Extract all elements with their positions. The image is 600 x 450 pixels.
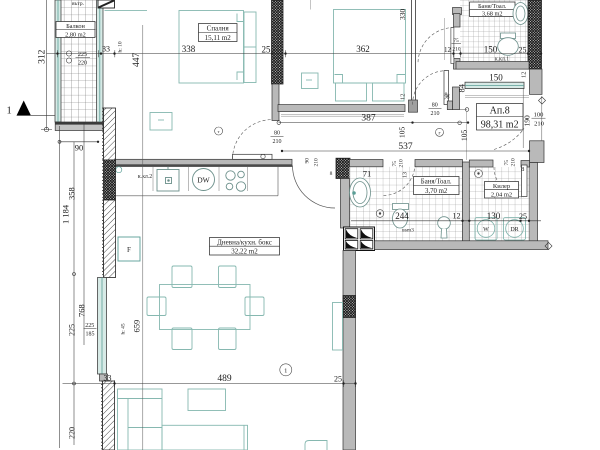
svg-text:12: 12: [444, 46, 452, 54]
svg-text:489: 489: [217, 374, 232, 384]
svg-text:1: 1: [7, 106, 12, 117]
svg-text:659: 659: [132, 320, 142, 333]
svg-text:h: 45: h: 45: [121, 323, 127, 334]
svg-text:210: 210: [534, 120, 544, 127]
svg-text:537: 537: [398, 142, 413, 152]
svg-text:г: г: [438, 132, 440, 137]
svg-text:75: 75: [504, 160, 510, 166]
svg-text:84: 84: [457, 83, 467, 92]
svg-text:210: 210: [399, 159, 405, 168]
svg-text:Ап.8: Ап.8: [490, 106, 510, 117]
svg-text:220: 220: [68, 427, 77, 439]
svg-text:2,80 m2: 2,80 m2: [65, 31, 86, 38]
svg-text:вsm3: вsm3: [402, 228, 414, 234]
svg-text:25: 25: [262, 45, 272, 55]
svg-text:768: 768: [77, 304, 87, 317]
svg-text:Килер: Килер: [493, 183, 510, 190]
svg-text:8: 8: [330, 171, 333, 177]
svg-text:225: 225: [68, 324, 77, 336]
svg-text:90: 90: [75, 143, 84, 153]
svg-text:338: 338: [182, 44, 196, 54]
svg-text:362: 362: [356, 44, 370, 54]
svg-text:75: 75: [392, 161, 398, 167]
svg-text:244: 244: [395, 211, 409, 221]
svg-text:33: 33: [104, 374, 112, 383]
svg-text:220: 220: [78, 60, 87, 66]
svg-text:к.кл.2: к.кл.2: [138, 174, 152, 180]
svg-text:Балкон: Балкон: [66, 23, 85, 30]
svg-text:12: 12: [453, 212, 461, 221]
svg-text:130: 130: [487, 211, 501, 221]
svg-text:к.кл.1: к.кл.1: [495, 57, 509, 63]
svg-text:25: 25: [519, 212, 527, 221]
svg-text:25: 25: [519, 46, 527, 55]
svg-text:Дневна/кухн. бокс: Дневна/кухн. бокс: [217, 239, 272, 247]
svg-text:71: 71: [363, 169, 372, 179]
svg-text:1: 1: [284, 368, 287, 375]
svg-text:т: т: [218, 129, 220, 134]
svg-text:вътр.: вътр.: [72, 1, 85, 7]
svg-text:90: 90: [305, 158, 311, 164]
svg-text:98,31 m2: 98,31 m2: [481, 119, 519, 130]
svg-text:Спалня: Спалня: [207, 25, 230, 33]
svg-text:F: F: [127, 246, 131, 254]
svg-text:330: 330: [398, 9, 407, 21]
svg-text:13: 13: [403, 172, 409, 178]
svg-text:8: 8: [445, 93, 448, 99]
svg-text:2,04 m2: 2,04 m2: [491, 192, 512, 199]
svg-text:DR: DR: [510, 227, 518, 233]
svg-text:12: 12: [400, 94, 407, 101]
svg-text:387: 387: [361, 114, 376, 124]
svg-text:33: 33: [102, 45, 110, 54]
svg-text:80: 80: [432, 103, 438, 109]
svg-text:210: 210: [314, 158, 320, 167]
svg-text:12: 12: [520, 72, 527, 79]
svg-text:Баня/Тоал.: Баня/Тоал.: [478, 3, 507, 10]
svg-text:312: 312: [38, 49, 48, 64]
svg-text:150: 150: [489, 73, 503, 83]
svg-text:150: 150: [484, 45, 498, 55]
svg-text:75: 75: [453, 38, 459, 44]
svg-text:225: 225: [85, 323, 94, 329]
svg-text:3,68 m2: 3,68 m2: [482, 11, 503, 18]
svg-text:190: 190: [523, 115, 532, 127]
svg-text:25: 25: [334, 375, 342, 384]
svg-text:210: 210: [431, 111, 440, 117]
svg-text:Баня/Тоал.: Баня/Тоал.: [421, 179, 452, 186]
svg-text:DW: DW: [197, 176, 210, 185]
svg-text:210: 210: [452, 47, 461, 53]
svg-text:358: 358: [67, 187, 77, 200]
svg-text:W: W: [483, 227, 489, 233]
svg-text:210: 210: [511, 158, 517, 167]
svg-text:105: 105: [460, 130, 469, 142]
svg-text:15,11 m2: 15,11 m2: [205, 34, 232, 42]
svg-text:1 184: 1 184: [61, 204, 71, 224]
svg-text:105: 105: [398, 127, 407, 139]
svg-text:32,22 m2: 32,22 m2: [231, 247, 258, 255]
svg-text:80: 80: [274, 131, 280, 137]
svg-text:447: 447: [132, 53, 142, 68]
svg-text:3,70 m2: 3,70 m2: [425, 188, 448, 195]
svg-text:8: 8: [521, 166, 524, 173]
svg-text:h: 10: h: 10: [118, 41, 124, 52]
svg-text:185: 185: [86, 332, 95, 338]
svg-text:210: 210: [273, 139, 282, 145]
